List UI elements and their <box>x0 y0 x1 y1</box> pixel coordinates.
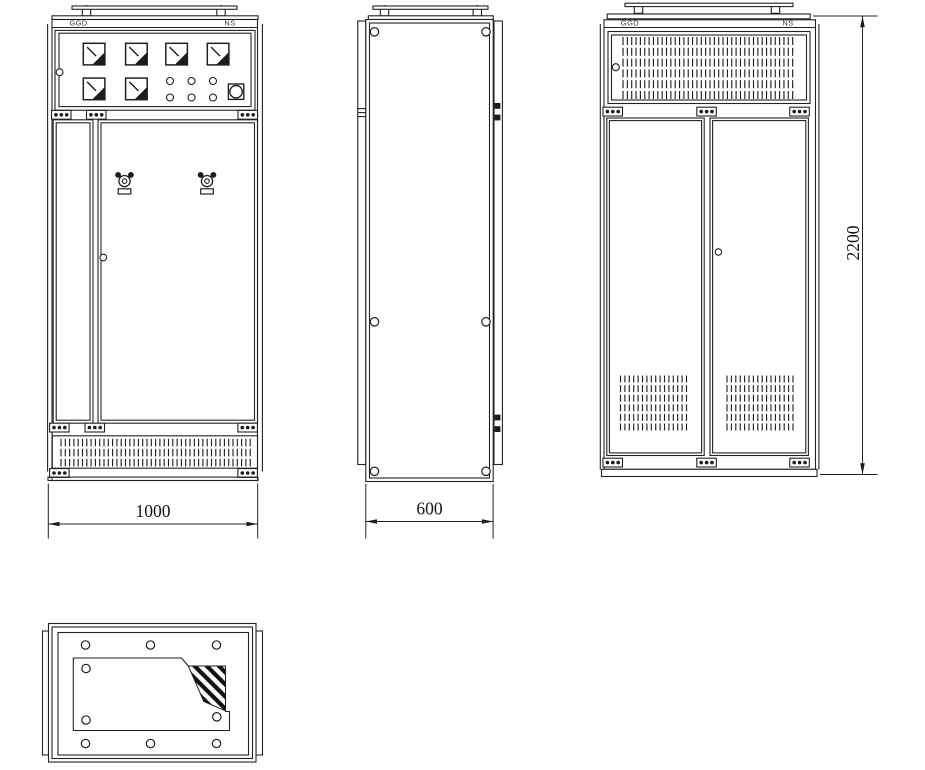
indicator-lamp-icon <box>188 78 195 85</box>
bolt-hole-icon <box>82 664 90 672</box>
push-button-icon <box>230 86 242 98</box>
side-depth-dimension: 600 <box>366 484 493 539</box>
panel-lock-icon <box>56 69 63 76</box>
bolt-hole-icon <box>82 716 90 724</box>
hinge-strip <box>603 107 623 116</box>
drawing-canvas: GGD NS <box>0 0 925 770</box>
bolt-hole-icon <box>213 713 221 721</box>
hinge-strip <box>603 458 623 467</box>
hinge-strip <box>50 423 70 432</box>
front-view: GGD NS <box>48 6 263 539</box>
hinge-mark <box>495 426 501 432</box>
side-depth-dimension-text: 600 <box>416 499 443 519</box>
side-tab-right <box>256 631 263 755</box>
front-model-label-right: NS <box>224 19 235 28</box>
hinge-strip <box>697 458 717 467</box>
lifting-bar <box>625 3 793 6</box>
indicator-lamp-icon <box>188 94 195 101</box>
panel-lock-icon <box>612 64 619 71</box>
bolt-hole-icon <box>81 739 89 747</box>
lifting-bar <box>373 6 488 9</box>
height-dimension-text: 2200 <box>843 225 863 260</box>
hinge-strip <box>50 469 70 478</box>
front-model-label-left: GGD <box>69 19 87 28</box>
bolt-hole-icon <box>482 28 490 36</box>
analog-meter-icon <box>126 43 148 65</box>
hinge-strip <box>52 110 72 119</box>
hinge-mark <box>495 103 501 109</box>
hinge-strip <box>238 110 258 119</box>
side-tab-left <box>43 631 49 755</box>
bolt-hole-icon <box>146 641 154 649</box>
door-lock-icon <box>715 249 721 255</box>
dimension-arrow <box>860 16 865 27</box>
bolt-hole-icon <box>212 739 220 747</box>
side-view: 600 <box>358 6 503 539</box>
front-width-dimension-text: 1000 <box>136 501 171 521</box>
rear-model-label-left: GGD <box>621 19 639 28</box>
bolt-hole-icon <box>146 739 154 747</box>
dimension-arrow <box>366 519 377 524</box>
bolt-hole-icon <box>212 641 220 649</box>
rear-edge-strip <box>494 21 502 465</box>
hinge-strip <box>790 458 810 467</box>
hinge-strip <box>790 107 810 116</box>
hinge-strip <box>238 423 258 432</box>
front-width-dimension: 1000 <box>48 484 257 539</box>
dimension-arrow <box>482 519 493 524</box>
indicator-lamp-icon <box>210 78 217 85</box>
front-edge-strip <box>358 21 366 465</box>
indicator-lamp-icon <box>167 94 174 101</box>
analog-meter-icon <box>207 43 229 65</box>
rear-model-label-right: NS <box>782 19 793 28</box>
dimension-arrow <box>48 522 59 527</box>
lifting-bar <box>72 6 237 9</box>
hinge-mark <box>495 115 501 121</box>
analog-meter-icon <box>166 43 188 65</box>
bolt-hole-icon <box>482 318 490 326</box>
indicator-lamp-icon <box>210 94 217 101</box>
hinge-strip <box>238 469 258 478</box>
cabinet-engineering-drawing: GGD NS <box>0 0 925 770</box>
bolt-hole-icon <box>370 28 378 36</box>
side-panel <box>366 20 493 482</box>
base-plinth <box>602 469 818 476</box>
top-cap <box>368 16 493 20</box>
bottom-view <box>43 624 263 763</box>
analog-meter-icon <box>126 78 148 100</box>
bolt-hole-icon <box>370 467 378 475</box>
analog-meter-icon <box>83 43 105 65</box>
height-dimension: 2200 <box>813 16 878 475</box>
rear-view: GGD NS 2200 <box>600 3 877 476</box>
hinge-strip <box>87 110 107 119</box>
hinge-strip <box>85 423 105 432</box>
bolt-hole-icon <box>482 467 490 475</box>
indicator-lamp-icon <box>167 78 174 85</box>
hinge-strip <box>697 107 717 116</box>
door-lock-icon <box>100 254 107 261</box>
analog-meter-icon <box>83 78 105 100</box>
bolt-hole-icon <box>81 641 89 649</box>
hinge-mark <box>495 415 501 421</box>
dimension-arrow <box>247 522 258 527</box>
bolt-hole-icon <box>370 318 378 326</box>
dimension-arrow <box>860 463 865 474</box>
